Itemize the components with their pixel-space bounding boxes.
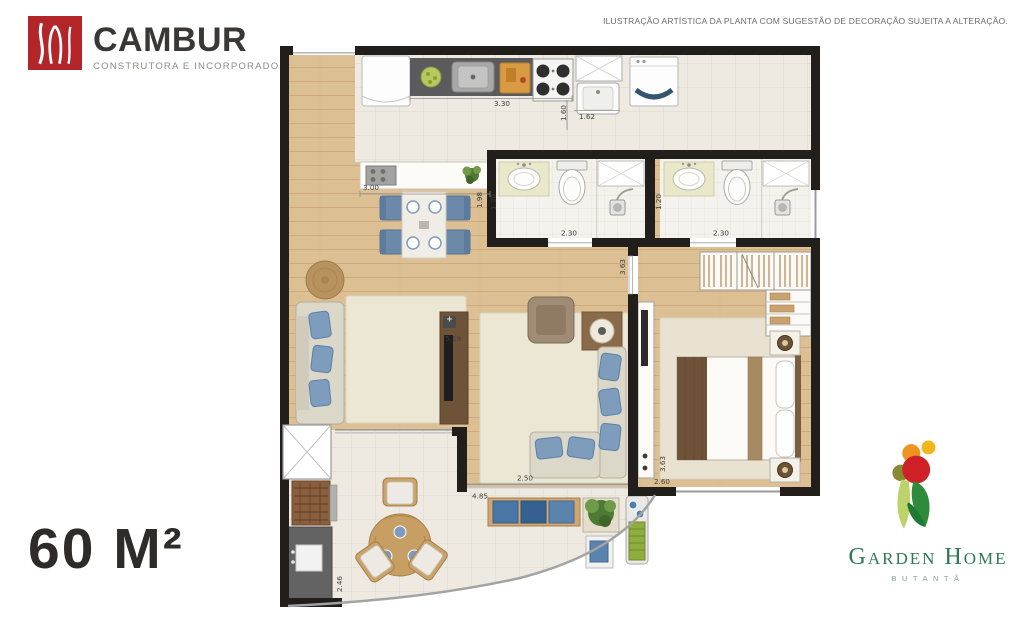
colander [421,67,441,87]
developer-text: CAMBUR CONSTRUTORA E INCORPORADORA [93,16,295,72]
cooktop-stove [533,59,573,101]
double-bed [677,355,801,462]
tv [444,335,453,401]
project-name: Garden Home [832,544,1024,571]
disclaimer-text: ILUSTRAÇÃO ARTÍSTICA DA PLANTA COM SUGES… [603,16,1008,26]
bathroom-1 [495,159,646,238]
dim-label: 2.60 [654,477,670,486]
project-location: BUTANTÃ [832,574,1024,583]
dim-label: 1.98 [475,192,484,208]
headboard [795,355,801,462]
pillow [776,410,794,457]
dim-label: 2.30 [561,229,577,238]
entry-door [293,46,355,55]
area-label: 60 M² [28,516,184,582]
developer-name: CAMBUR [93,23,295,57]
pillow [776,361,794,408]
dim-label: 3.63 [618,259,627,275]
bathroom-2 [660,159,811,238]
dim-label: 2.50 [517,474,533,483]
plant [583,498,619,532]
dining-area [360,162,490,258]
dim-label: 1.62 [579,112,595,121]
dim-label: 1.60 [559,105,568,121]
wardrobe [700,252,811,290]
marketing-sheet: CAMBUR CONSTRUTORA E INCORPORADORA ILUST… [0,0,1024,637]
developer-logo: CAMBUR CONSTRUTORA E INCORPORADORA [28,16,295,72]
dim-label: 3.00 [363,183,379,192]
dim-label: 1.20 [489,194,498,210]
cambur-logo-icon [28,16,82,70]
flower-icon [876,430,958,542]
terrace-glass-door [335,429,452,431]
floorplan: 3.30 1.60 1.62 3.00 1.98 1.20 2.30 1.20 … [280,40,820,615]
dim-label: 4.85 [472,492,488,501]
dim-label: 2.46 [335,576,344,592]
dim-label: 1.20 [654,194,663,210]
bedroom-tv [641,310,648,366]
counter-sink [296,545,322,571]
dim-label: 2.30 [713,229,729,238]
dim-label: 3.63 [658,456,667,472]
dim-label: 3.30 [494,99,510,108]
terrace-glass-door [467,484,628,486]
terrace-chair [383,478,417,506]
developer-tagline: CONSTRUTORA E INCORPORADORA [93,61,295,72]
project-logo: Garden Home BUTANTÃ [832,430,1024,583]
dim-label: 5.19 [445,334,461,343]
chaise-lounge [626,496,648,564]
fridge [362,56,410,106]
